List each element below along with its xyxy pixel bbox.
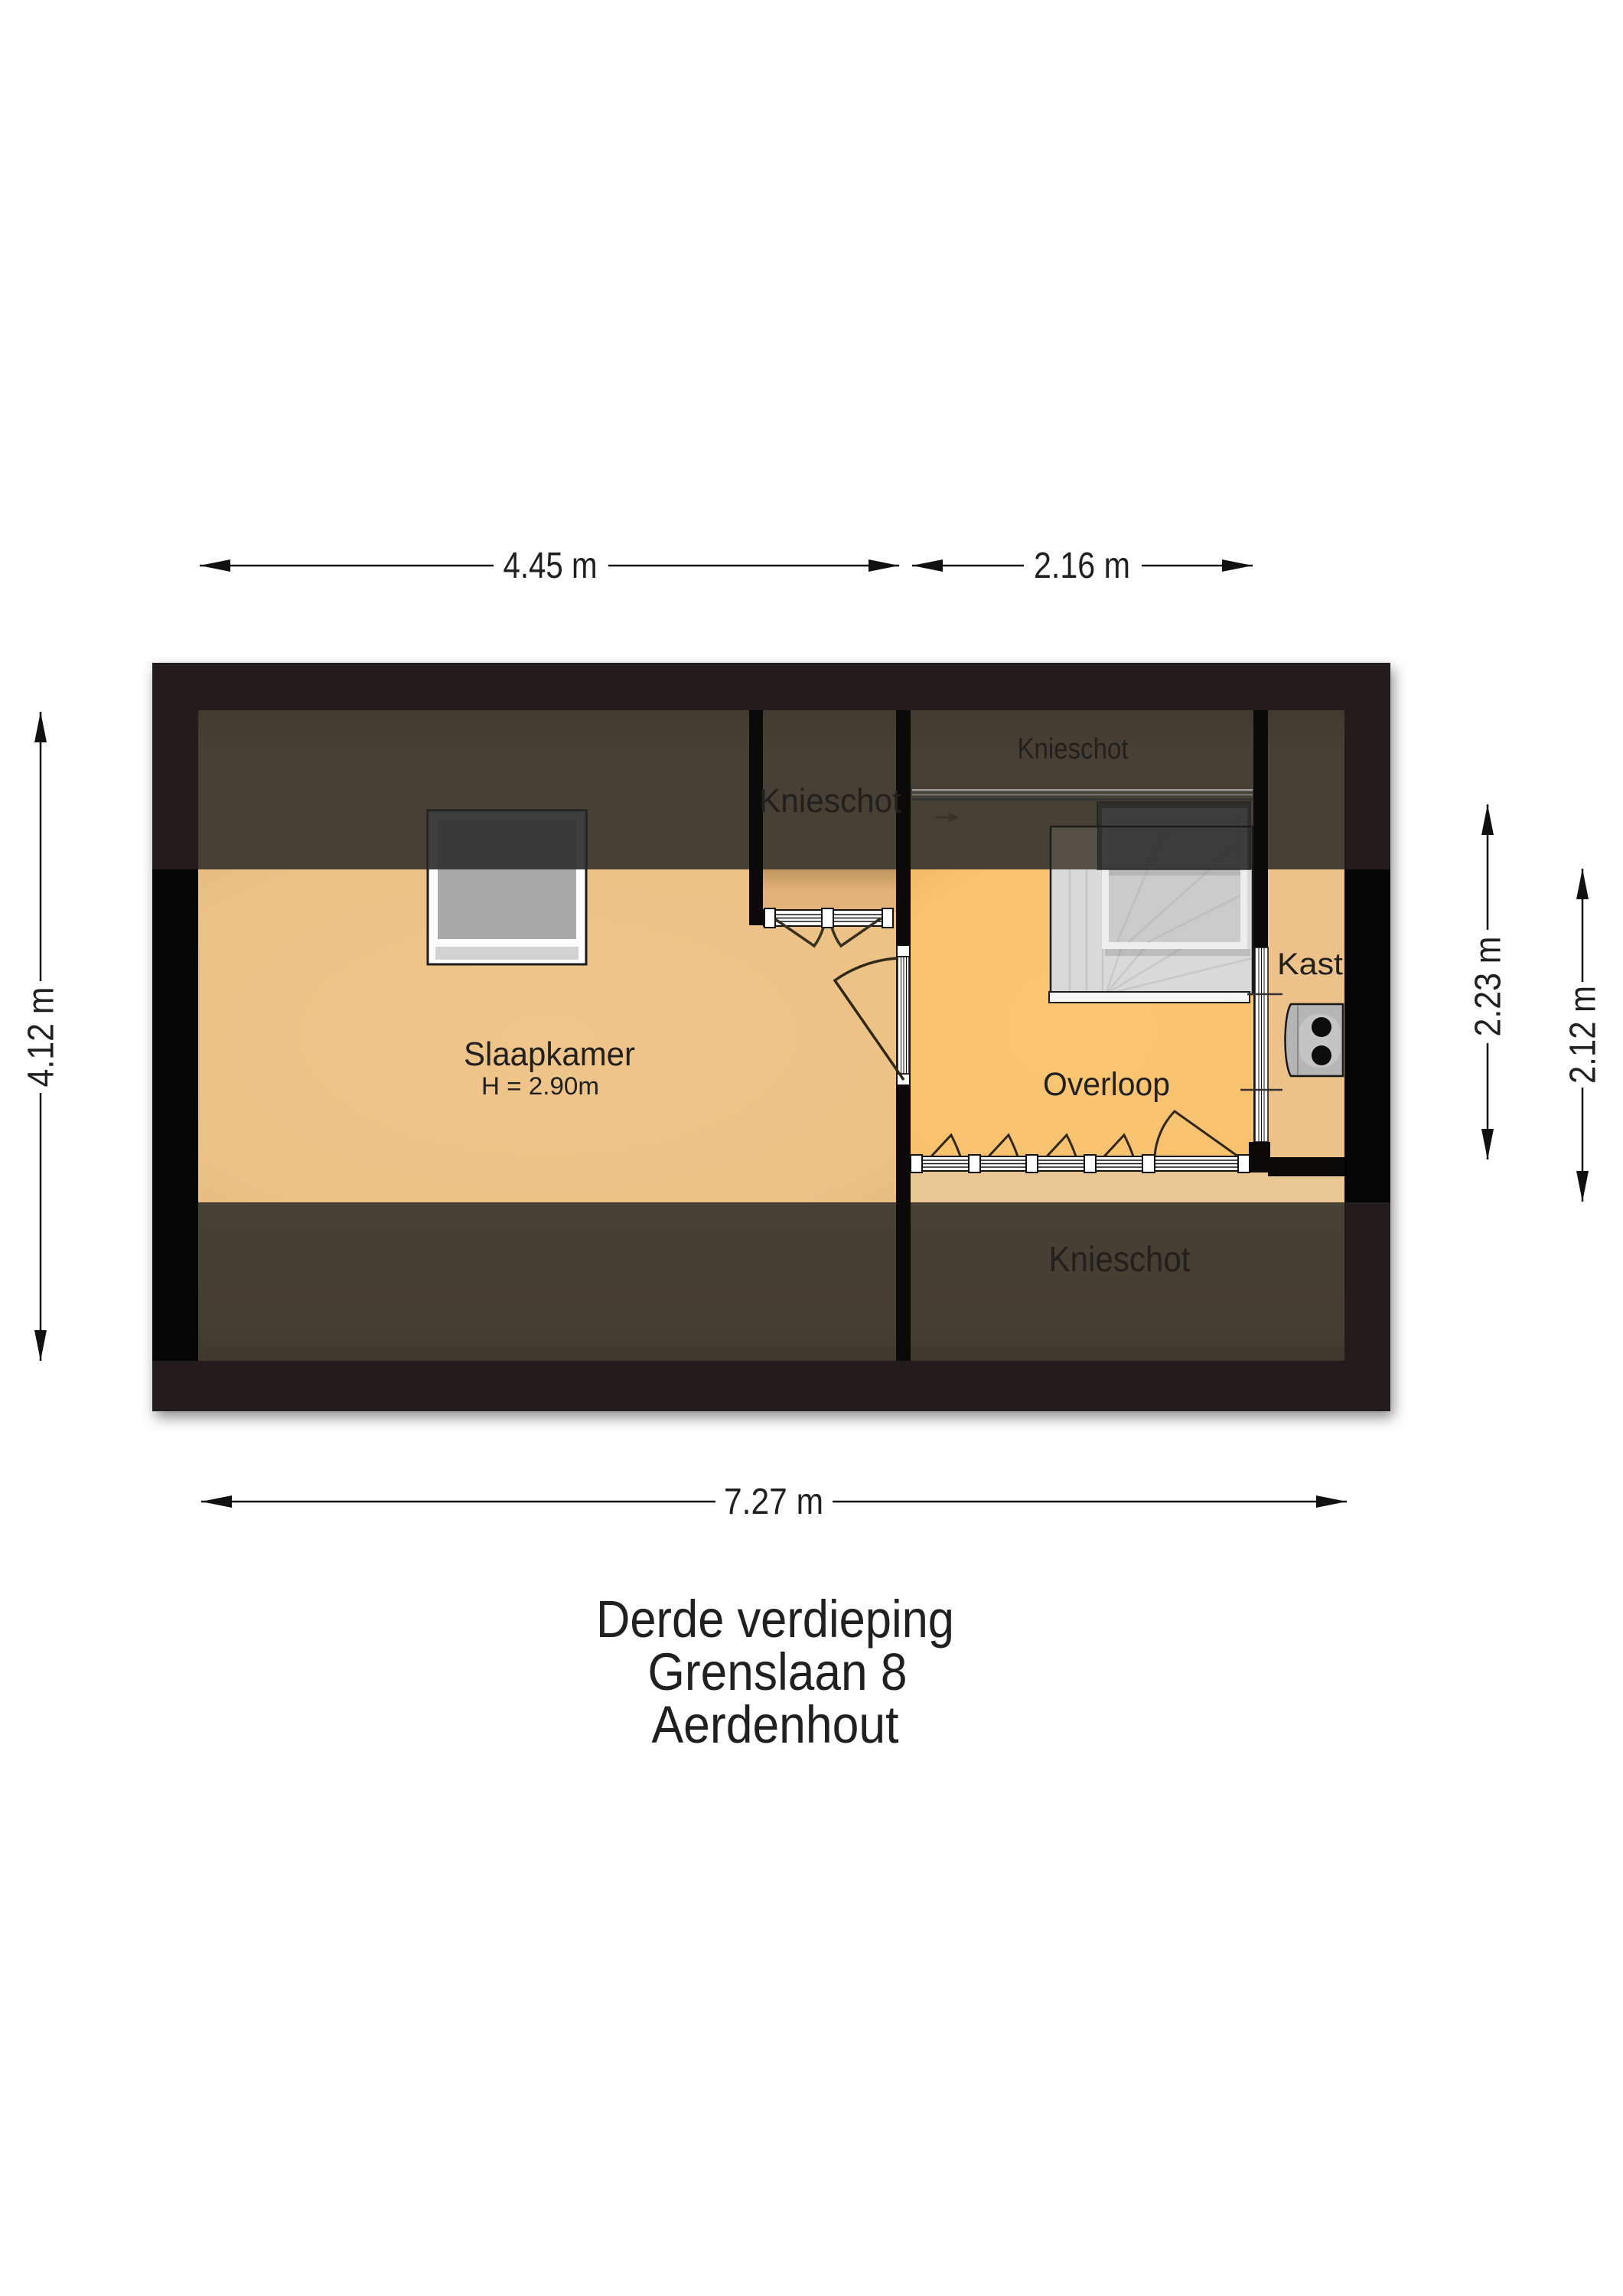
svg-text:Derde verdieping: Derde verdieping [596, 1590, 954, 1649]
svg-text:2.23 m: 2.23 m [1468, 937, 1509, 1037]
svg-text:Slaapkamer: Slaapkamer [464, 1035, 635, 1073]
svg-text:7.27 m: 7.27 m [724, 1482, 823, 1522]
svg-text:Knieschot: Knieschot [759, 782, 901, 820]
svg-text:Overloop: Overloop [1043, 1066, 1170, 1103]
svg-text:4.12 m: 4.12 m [21, 987, 62, 1088]
svg-text:Aerdenhout: Aerdenhout [652, 1695, 899, 1754]
svg-text:H = 2.90m: H = 2.90m [481, 1072, 599, 1100]
svg-text:Knieschot: Knieschot [1018, 733, 1129, 765]
svg-text:Kast: Kast [1277, 947, 1343, 981]
svg-text:Knieschot: Knieschot [1049, 1239, 1191, 1279]
svg-text:4.45 m: 4.45 m [504, 546, 598, 586]
svg-text:2.16 m: 2.16 m [1034, 546, 1130, 586]
svg-text:Grenslaan 8: Grenslaan 8 [648, 1642, 908, 1701]
svg-text:2.12 m: 2.12 m [1563, 986, 1604, 1084]
